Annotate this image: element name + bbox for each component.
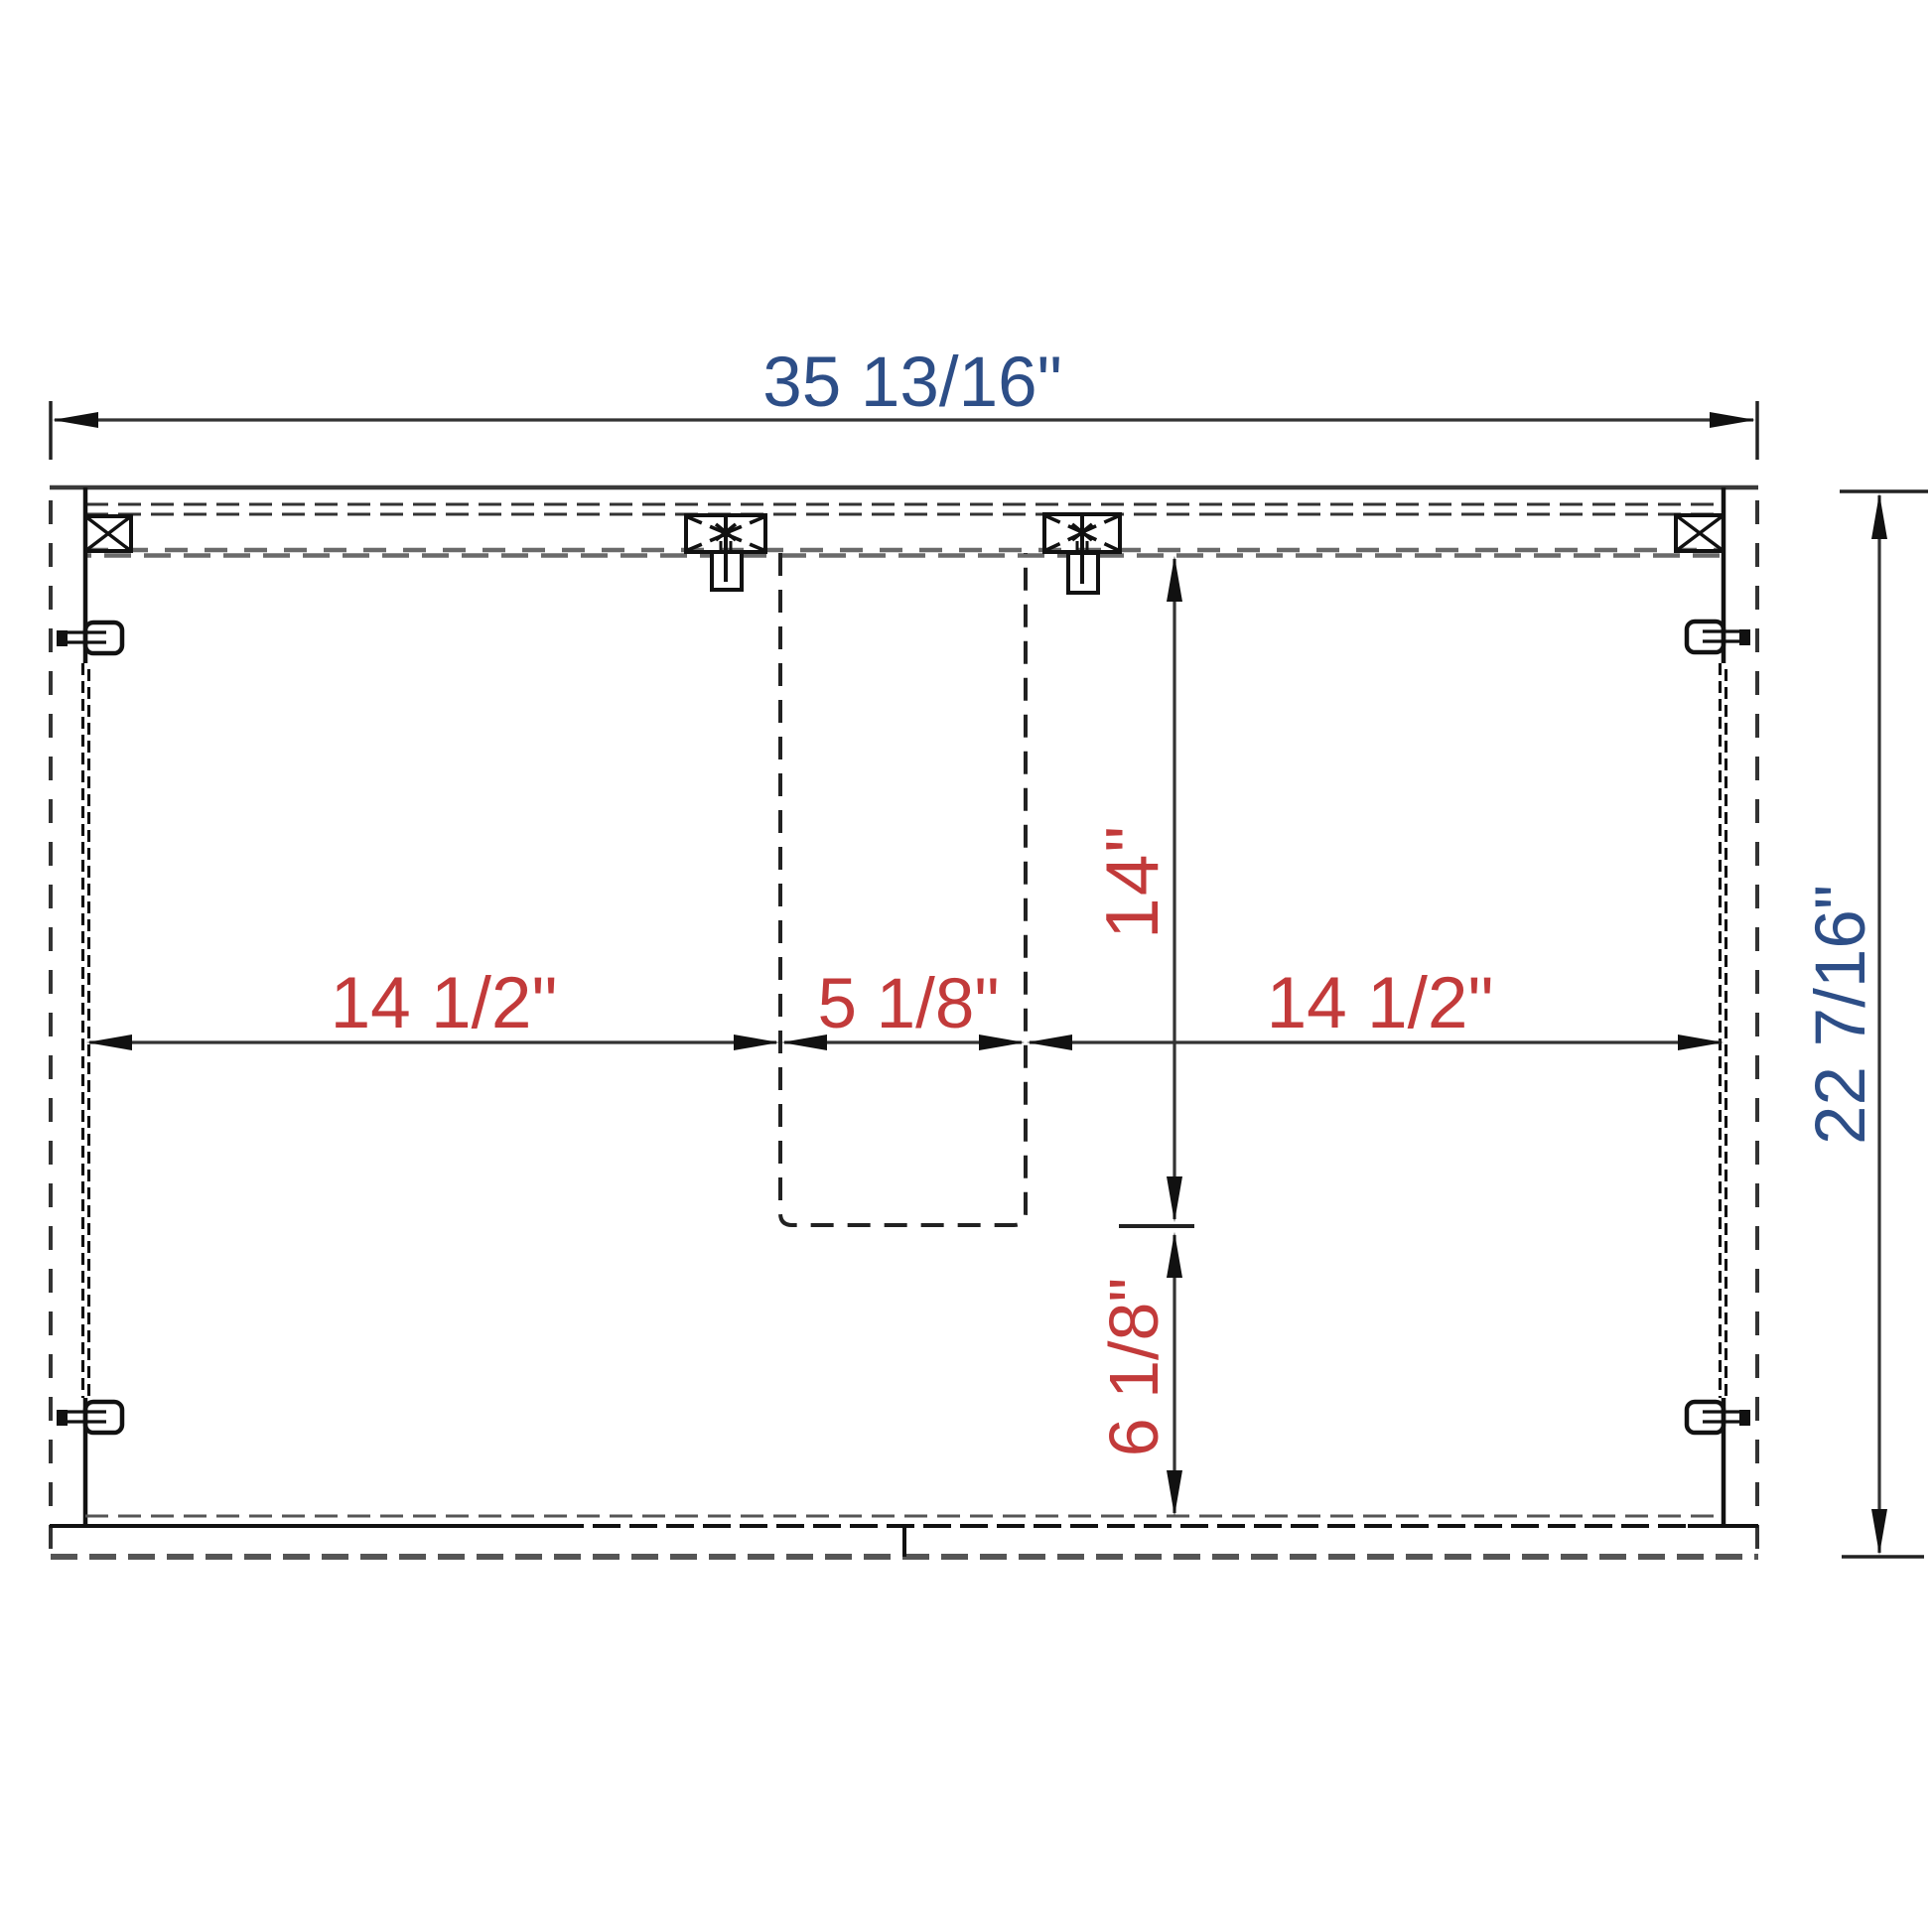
- svg-text:22 7/16": 22 7/16": [1802, 885, 1880, 1145]
- svg-text:14 1/2": 14 1/2": [1267, 963, 1494, 1043]
- svg-text:14 1/2": 14 1/2": [331, 963, 558, 1043]
- svg-text:35 13/16": 35 13/16": [762, 344, 1062, 422]
- svg-text:14": 14": [1090, 824, 1173, 939]
- svg-text:5 1/8": 5 1/8": [817, 965, 999, 1043]
- svg-text:6 1/8": 6 1/8": [1095, 1278, 1173, 1457]
